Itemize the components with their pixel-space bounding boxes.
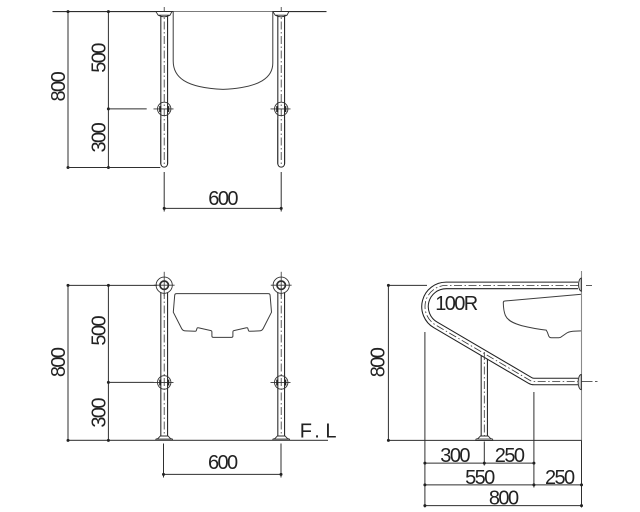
svg-text:800: 800: [48, 347, 70, 377]
svg-text:250: 250: [495, 445, 525, 467]
svg-text:550: 550: [465, 467, 495, 489]
svg-text:500: 500: [88, 316, 110, 346]
svg-text:800: 800: [367, 347, 389, 377]
svg-text:600: 600: [208, 188, 238, 210]
svg-text:300: 300: [440, 445, 470, 467]
svg-text:800: 800: [489, 488, 519, 510]
svg-text:F.L: F.L: [300, 420, 337, 442]
svg-text:500: 500: [88, 43, 110, 73]
svg-text:600: 600: [208, 452, 238, 474]
svg-text:250: 250: [545, 467, 575, 489]
svg-text:100R: 100R: [435, 293, 478, 315]
svg-text:300: 300: [88, 398, 110, 428]
svg-text:800: 800: [48, 71, 70, 101]
svg-text:300: 300: [88, 122, 110, 152]
